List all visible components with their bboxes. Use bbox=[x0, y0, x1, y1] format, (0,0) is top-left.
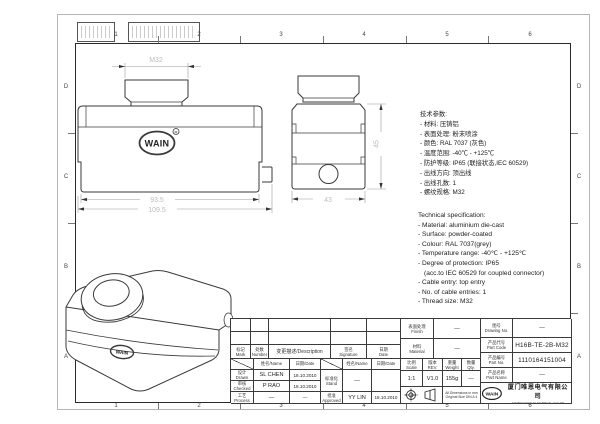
side-view-arrows bbox=[292, 104, 383, 201]
approved-en: Approved bbox=[322, 398, 340, 403]
spec-line: Technical specification: bbox=[418, 211, 573, 221]
stand-date bbox=[372, 370, 401, 392]
spec-line: - Surface: powder-coated bbox=[418, 230, 573, 240]
weight-label: 重量 Weight bbox=[443, 359, 462, 371]
drawn-en: Drawn bbox=[236, 375, 248, 380]
weight-value: 155g bbox=[443, 371, 462, 387]
part-name-label: 产品名称 Part Name bbox=[481, 368, 513, 383]
spec-line: - Degree of protection: IP65 bbox=[418, 259, 573, 269]
spec-line: - Thread size: M32 bbox=[418, 297, 573, 307]
spec-line: - Material: aluminium die-cast bbox=[418, 221, 573, 231]
diagonal-cell bbox=[231, 359, 254, 370]
engineering-drawing-sheet: 1 2 3 4 5 6 1 2 3 4 5 6 D C B A D C B A bbox=[0, 0, 600, 424]
company-name-en: XIAMEN WAIN ELECTRICAL CO.LTD bbox=[512, 401, 565, 405]
part-name-value: — bbox=[513, 368, 572, 383]
spec-line: - 温度范围: -40℃ - +125℃ bbox=[420, 149, 570, 159]
qty-value: — bbox=[462, 371, 481, 387]
dim-label-height: 45 bbox=[374, 140, 381, 148]
company-cell: WAIN 厦门唯恩电气有限公司 XIAMEN WAIN ELECTRICAL C… bbox=[481, 383, 572, 404]
revision-number-header: 处数 Number bbox=[251, 345, 269, 359]
finish-en: Finish bbox=[411, 329, 422, 334]
revision-cell-empty bbox=[251, 332, 269, 345]
part-code-en: Part Code bbox=[487, 345, 506, 350]
number-en: Number bbox=[252, 352, 267, 357]
mark-en: Mark bbox=[236, 352, 246, 357]
drawing-no-label: 图号 Drawing No. bbox=[481, 319, 513, 338]
part-no-label: 产品编号 Part No. bbox=[481, 353, 513, 368]
company-logo: WAIN bbox=[481, 386, 503, 401]
wain-logo: WAIN R bbox=[140, 129, 180, 155]
approved-label: 批准 Approved bbox=[321, 392, 343, 404]
date-header: 日期/Date bbox=[290, 359, 321, 370]
first-angle-projection-icon bbox=[403, 388, 441, 402]
rev-en: REV. bbox=[428, 365, 438, 370]
title-block: 标记 Mark 处数 Number 变更描述/Description 签名 Si… bbox=[230, 318, 571, 403]
name-header-label: 姓名/Name bbox=[261, 361, 282, 367]
revision-cell-empty bbox=[331, 319, 367, 332]
revision-cell-empty bbox=[269, 319, 331, 332]
revision-cell-empty bbox=[231, 332, 251, 345]
process-date: — bbox=[290, 392, 321, 404]
company-logo-text: WAIN bbox=[485, 391, 498, 397]
dim-label-width-inner: 93.5 bbox=[150, 197, 164, 204]
spec-line: - 表面处理: 粉末喷涂 bbox=[420, 130, 570, 140]
process-en: Process bbox=[234, 398, 250, 403]
scale-label: 比例 Scale bbox=[401, 359, 423, 371]
name-header: 姓名/Name bbox=[254, 359, 290, 370]
drawing-no-value: — bbox=[513, 319, 572, 338]
note-line-2: Original Size DIN A 4 bbox=[446, 395, 478, 399]
part-code-value: H16B-TE-2B-M32 bbox=[513, 338, 572, 353]
isometric-view: WAIN bbox=[66, 269, 233, 391]
revision-cell-empty bbox=[251, 319, 269, 332]
part-code-label: 产品代号 Part Code bbox=[481, 338, 513, 353]
front-view-arrows bbox=[78, 65, 272, 211]
drawn-date: 18.10.2010 bbox=[290, 370, 321, 381]
spec-line: - Colour: RAL 7037(grey) bbox=[418, 240, 573, 250]
scale-en: Scale bbox=[406, 365, 417, 370]
material-en: Material bbox=[409, 349, 424, 354]
revision-mark-header: 标记 Mark bbox=[231, 345, 251, 359]
process-name: — bbox=[254, 392, 290, 404]
spec-line: - 出线方向: 顶出线 bbox=[420, 169, 570, 179]
revision-cell-empty bbox=[367, 319, 401, 332]
finish-value: — bbox=[434, 319, 481, 339]
wain-logo-text: WAIN bbox=[145, 139, 170, 149]
date-en: Date bbox=[379, 352, 388, 357]
drawn-label: 设计 Drawn bbox=[231, 370, 254, 381]
revision-cell-empty bbox=[231, 319, 251, 332]
rev-value: V1.0 bbox=[423, 371, 443, 387]
spec-line: - 螺纹规格: M32 bbox=[420, 188, 570, 198]
part-name-en: Part Name bbox=[486, 375, 507, 380]
date-header-label: 日期/Date bbox=[377, 361, 396, 367]
part-no-value: 1110164151004 bbox=[513, 353, 572, 368]
spec-line: - 出线孔数: 1 bbox=[420, 179, 570, 189]
rev-label: 版本 REV. bbox=[423, 359, 443, 371]
dimension-note: All Dimensions in mm Original Size DIN A… bbox=[443, 387, 481, 404]
spec-block-chinese: 技术参数: - 材料: 压铸铝 - 表面处理: 粉末喷涂 - 颜色: RAL 7… bbox=[420, 110, 570, 198]
projection-symbols bbox=[401, 387, 443, 404]
revision-description-header: 变更描述/Description bbox=[269, 345, 331, 359]
qty-en: Qty. bbox=[467, 365, 475, 370]
dim-label-thread: M32 bbox=[149, 57, 163, 64]
side-view bbox=[292, 76, 365, 189]
spec-line: - 颜色: RAL 7037 (灰色) bbox=[420, 139, 570, 149]
dim-label-depth: 43 bbox=[324, 197, 332, 204]
stand-en: Stand bbox=[326, 381, 337, 386]
scale-value: 1:1 bbox=[401, 371, 423, 387]
front-view: WAIN R bbox=[78, 80, 272, 192]
revision-signature-header: 签名 Signature bbox=[331, 345, 367, 359]
approved-date: 18.10.2010 bbox=[372, 392, 401, 404]
drawing-no-en: Drawing No. bbox=[485, 328, 509, 333]
revision-cell-empty bbox=[367, 332, 401, 345]
spec-block-english: Technical specification: - Material: alu… bbox=[418, 211, 573, 307]
spec-line: - 材料: 压铸铝 bbox=[420, 120, 570, 130]
stand-label: 标准化 Stand bbox=[321, 370, 343, 392]
weight-en: Weight bbox=[445, 365, 458, 370]
drawn-name: SL CHEN bbox=[254, 370, 290, 381]
checked-en: Checked bbox=[234, 386, 251, 391]
description-label: 变更描述/Description bbox=[276, 348, 322, 355]
checked-name: P RAO bbox=[254, 381, 290, 392]
process-label: 工艺 Process bbox=[231, 392, 254, 404]
date-header: 日期/Date bbox=[372, 359, 401, 370]
name-header-label: 姓名/Name bbox=[346, 361, 367, 367]
name-header: 姓名/Name bbox=[343, 359, 372, 370]
stand-name: — bbox=[343, 370, 372, 392]
checked-label: 审核 Checked bbox=[231, 381, 254, 392]
material-label: 材料 Material bbox=[401, 339, 434, 359]
front-view-dimensions bbox=[78, 63, 272, 213]
spec-line: - 防护等级: IP65 (联接状态,IEC 60529) bbox=[420, 159, 570, 169]
diagonal-cell bbox=[321, 359, 343, 370]
spec-line: - Cable entry: top entry bbox=[418, 278, 573, 288]
date-header-label: 日期/Date bbox=[296, 361, 315, 367]
material-value: — bbox=[434, 339, 481, 359]
spec-line: - No. of cable entries: 1 bbox=[418, 288, 573, 298]
part-no-en: Part No. bbox=[489, 360, 505, 365]
qty-label: 数量 Qty. bbox=[462, 359, 481, 371]
approved-name: YY LIN bbox=[343, 392, 372, 404]
spec-line: (acc.to IEC 60529 for coupled connector) bbox=[418, 269, 573, 279]
finish-label: 表面处理 Finish bbox=[401, 319, 434, 339]
revision-date-header: 日期 Date bbox=[367, 345, 401, 359]
signature-en: Signature bbox=[339, 352, 357, 357]
spec-line: 技术参数: bbox=[420, 110, 570, 120]
revision-cell-empty bbox=[269, 332, 331, 345]
side-view-dimensions bbox=[292, 104, 386, 203]
dim-label-width-outer: 109.5 bbox=[148, 207, 166, 214]
revision-cell-empty bbox=[331, 332, 367, 345]
spec-line: - Temperature range: -40℃ - +125℃ bbox=[418, 249, 573, 259]
registered-mark-icon: R bbox=[175, 129, 178, 134]
checked-date: 18.10.2010 bbox=[290, 381, 321, 392]
company-name-cn: 厦门唯恩电气有限公司 bbox=[505, 383, 571, 400]
